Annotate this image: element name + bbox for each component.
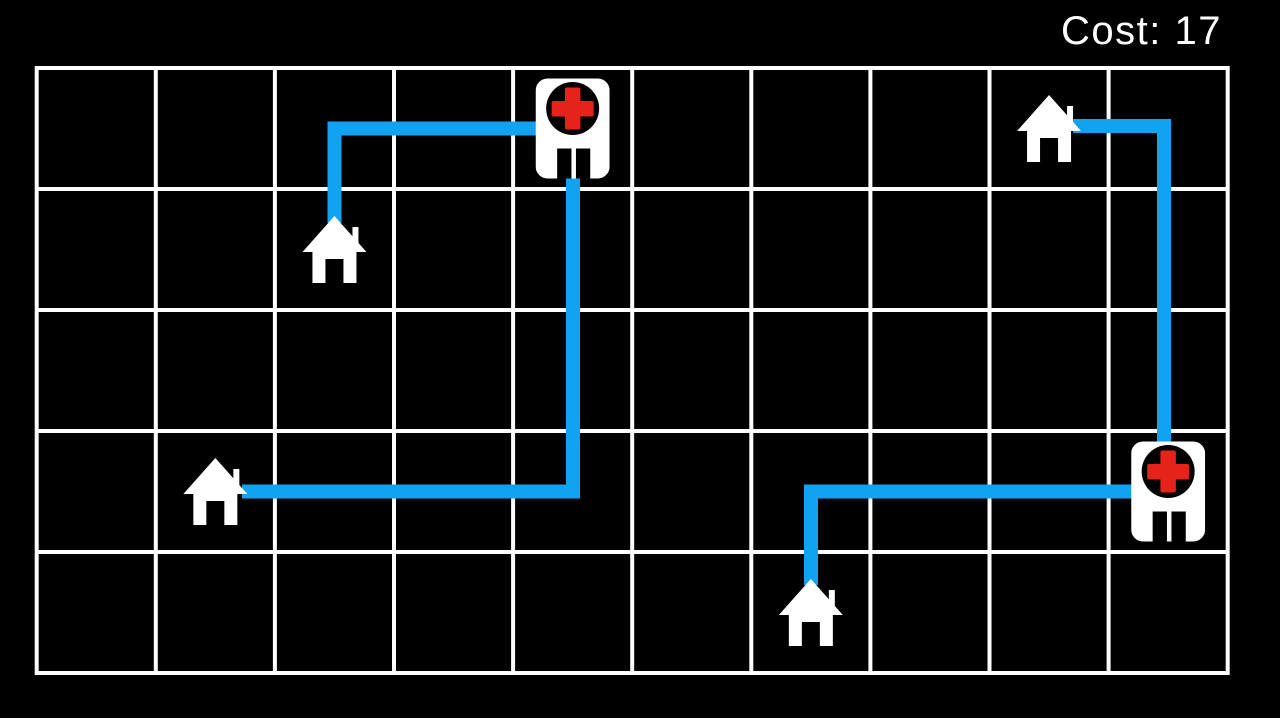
hospital-icon[interactable] [536, 79, 610, 179]
game-board[interactable] [0, 0, 1280, 718]
house-icon[interactable] [183, 458, 247, 525]
house-icon[interactable] [1017, 95, 1081, 162]
house-icon[interactable] [779, 579, 843, 646]
routes [242, 126, 1168, 585]
game-screen: Cost: 17 [0, 0, 1280, 718]
house-icon[interactable] [302, 216, 366, 283]
hospital-icon[interactable] [1131, 442, 1205, 542]
cost-display: Cost: 17 [1061, 2, 1222, 60]
